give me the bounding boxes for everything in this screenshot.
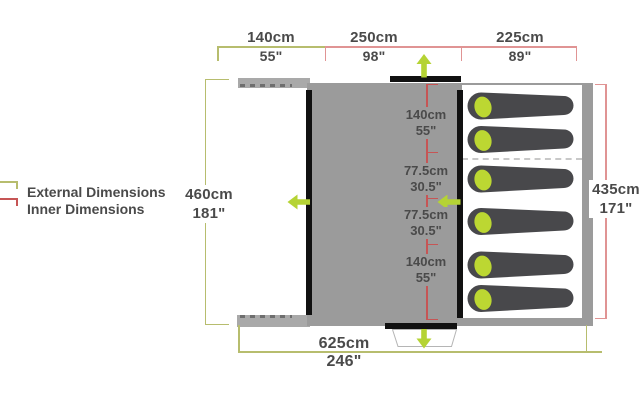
legend-external-label: External Dimensions bbox=[27, 184, 166, 200]
dim-inch: 181" bbox=[176, 204, 242, 223]
dim-inch: 30.5" bbox=[397, 179, 455, 195]
dim-label-inner-2: 77.5cm 30.5" bbox=[397, 163, 455, 195]
inner-dimensions-line-icon bbox=[0, 198, 18, 206]
bracket-top-inner-tick-2 bbox=[461, 46, 463, 61]
dim-inch: 89" bbox=[480, 48, 560, 64]
bracket-right-tick-bottom bbox=[595, 318, 607, 320]
dim-inch: 55" bbox=[231, 48, 311, 64]
dim-cm: 140cm bbox=[397, 254, 455, 270]
dim-inch: 55" bbox=[397, 270, 455, 286]
front-wall bbox=[306, 90, 312, 315]
dim-label-top-porch: 140cm 55" bbox=[231, 30, 311, 64]
dim-label-right: 435cm 171" bbox=[589, 180, 640, 218]
external-dimensions-line-icon bbox=[0, 181, 18, 189]
dim-inch: 55" bbox=[397, 123, 455, 139]
dim-label-inner-4: 140cm 55" bbox=[397, 254, 455, 286]
dim-cm: 140cm bbox=[231, 30, 311, 46]
bracket-center-tick-1 bbox=[426, 152, 438, 154]
bracket-bottom-line bbox=[238, 351, 602, 353]
bracket-center-tick-0 bbox=[426, 84, 438, 86]
sleeping-pod bbox=[462, 85, 582, 318]
bracket-center-tick-2 bbox=[426, 198, 438, 200]
dim-label-inner-1: 140cm 55" bbox=[397, 107, 455, 139]
top-door bbox=[390, 76, 461, 82]
bracket-right-tick-top bbox=[595, 84, 607, 86]
dim-cm: 225cm bbox=[480, 30, 560, 46]
dim-cm: 140cm bbox=[397, 107, 455, 123]
dim-label-bottom: 625cm 246" bbox=[294, 336, 394, 370]
bracket-center-tick-4 bbox=[426, 319, 438, 321]
porch-bottom-hatch bbox=[240, 315, 292, 318]
dim-inch: 30.5" bbox=[397, 223, 455, 239]
inner-wall bbox=[457, 90, 463, 318]
dim-cm: 250cm bbox=[334, 30, 414, 46]
bracket-top-external-tick bbox=[217, 46, 219, 61]
dim-inch: 171" bbox=[589, 199, 640, 218]
dim-label-inner-3: 77.5cm 30.5" bbox=[397, 207, 455, 239]
porch-top-hatch bbox=[240, 84, 292, 87]
dim-inch: 246" bbox=[294, 354, 394, 370]
bracket-top-inner-tick-3 bbox=[576, 46, 578, 61]
bracket-bottom-tick-left bbox=[238, 325, 240, 352]
bracket-left-tick-top bbox=[205, 79, 229, 81]
bracket-center-tick-3 bbox=[426, 244, 438, 246]
bracket-left-tick-bottom bbox=[205, 324, 229, 326]
door-arrow-up-icon bbox=[417, 54, 432, 78]
dim-cm: 625cm bbox=[294, 336, 394, 352]
bottom-door-flap bbox=[393, 330, 457, 347]
dim-label-top-living: 250cm 98" bbox=[334, 30, 414, 64]
dim-cm: 460cm bbox=[176, 185, 242, 204]
sleeping-pod-divider bbox=[462, 158, 582, 160]
dim-label-left: 460cm 181" bbox=[176, 185, 242, 223]
dim-cm: 77.5cm bbox=[397, 207, 455, 223]
legend-inner-label: Inner Dimensions bbox=[27, 201, 144, 217]
dim-cm: 435cm bbox=[589, 180, 640, 199]
bracket-bottom-tick-right bbox=[586, 325, 588, 352]
bottom-door bbox=[385, 323, 457, 329]
dim-cm: 77.5cm bbox=[397, 163, 455, 179]
bracket-top-inner-tick-1 bbox=[325, 46, 327, 61]
dim-inch: 98" bbox=[334, 48, 414, 64]
tent-floorplan-diagram: 140cm 55" 250cm 98" 225cm 89" 625cm 246"… bbox=[0, 0, 640, 400]
dim-label-top-sleeping: 225cm 89" bbox=[480, 30, 560, 64]
door-arrow-down-icon bbox=[417, 329, 432, 349]
